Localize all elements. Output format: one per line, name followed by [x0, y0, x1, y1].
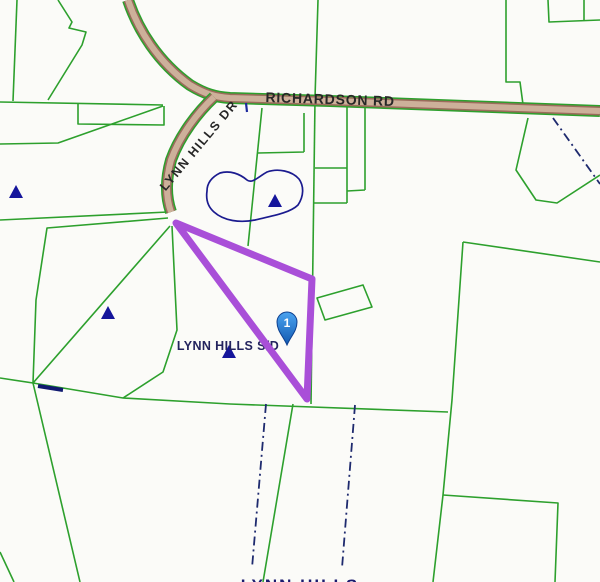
map-background — [0, 0, 600, 582]
pin-number: 1 — [284, 316, 291, 330]
map-canvas[interactable]: RICHARDSON RD LYNN HILLS DR LYNN HILLS S… — [0, 0, 600, 582]
creek-tick — [246, 103, 247, 112]
bottom-clipped-label: LYNN HILLS — [241, 576, 360, 582]
